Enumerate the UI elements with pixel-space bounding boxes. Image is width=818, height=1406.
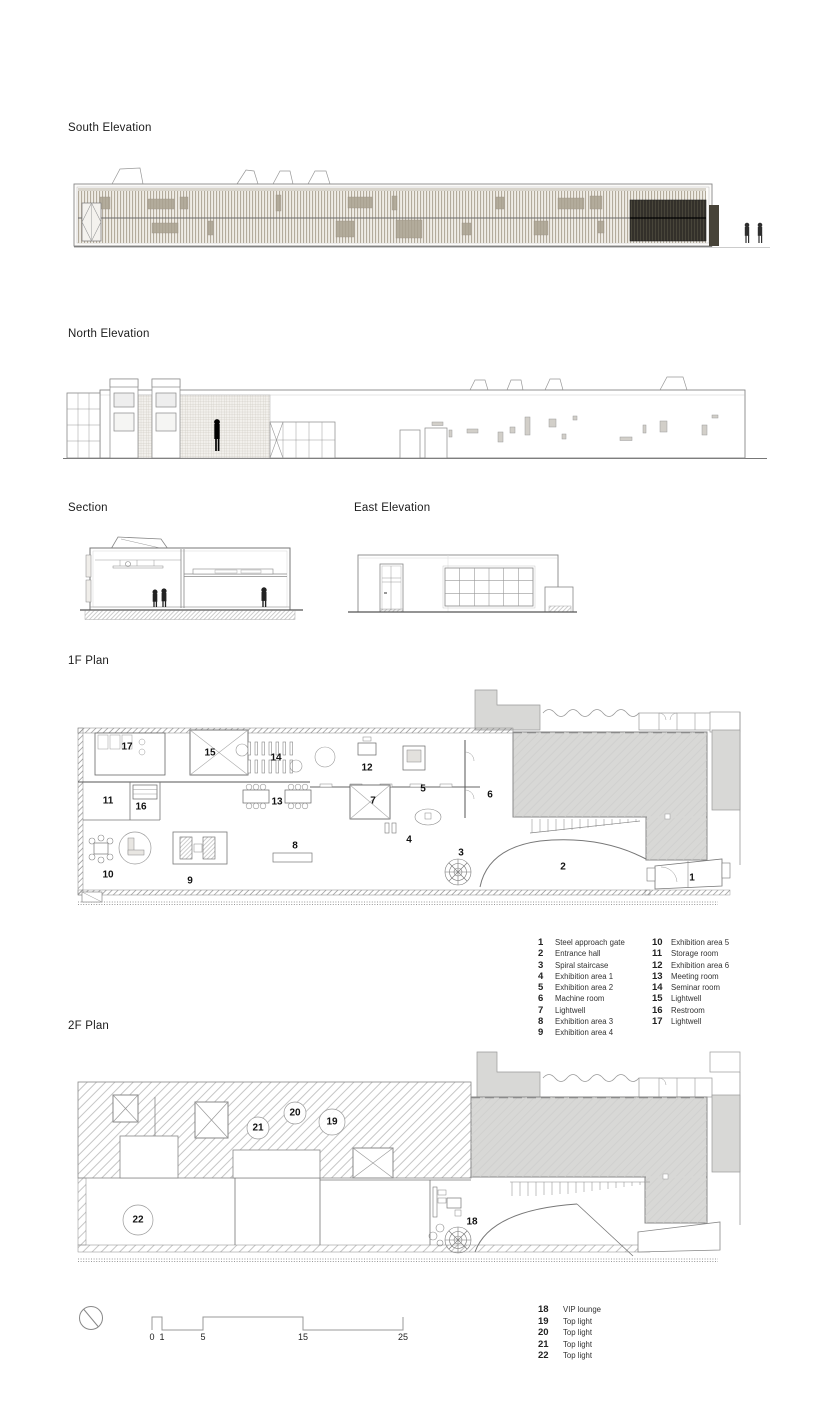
people-figures (745, 223, 762, 243)
legend-label: Top light (563, 1340, 592, 1349)
plan-2f-title: 2F Plan (68, 1020, 109, 1032)
legend-item: 17Lightwell (652, 1016, 729, 1027)
legend-num: 14 (652, 982, 667, 993)
legend-item: 5Exhibition area 2 (538, 982, 625, 993)
room-number-1f-12: 12 (361, 763, 372, 774)
legend-item: 7Lightwell (538, 1005, 625, 1016)
legend-num: 1 (538, 937, 551, 948)
legend-label: Exhibition area 3 (555, 1017, 613, 1026)
legend-item: 12Exhibition area 6 (652, 960, 729, 971)
legend-label: Lightwell (671, 1017, 701, 1026)
room-number-2f-22: 22 (132, 1215, 143, 1226)
legend-1f-col2: 10Exhibition area 5 11Storage room 12Exh… (652, 937, 729, 1027)
legend-label: Entrance hall (555, 949, 601, 958)
north-elevation-drawing (55, 365, 775, 470)
room-number-1f-3: 3 (458, 848, 464, 859)
legend-label: Restroom (671, 1006, 705, 1015)
plan-2f-drawing (70, 1040, 750, 1270)
legend-num: 4 (538, 971, 551, 982)
room-number-1f-1: 1 (689, 873, 695, 884)
plan-1f-drawing (70, 680, 750, 925)
scale-tick-0: 0 (149, 1332, 154, 1342)
room-number-1f-11: 11 (103, 796, 114, 807)
legend-item: 4Exhibition area 1 (538, 971, 625, 982)
east-elevation-title: East Elevation (354, 502, 430, 514)
legend-item: 9Exhibition area 4 (538, 1027, 625, 1038)
legend-item: 2Entrance hall (538, 948, 625, 959)
room-number-1f-4: 4 (406, 835, 412, 846)
legend-item: 20Top light (538, 1327, 601, 1339)
north-elevation-title: North Elevation (68, 328, 150, 340)
legend-item: 11Storage room (652, 948, 729, 959)
legend-num: 20 (538, 1327, 553, 1338)
legend-label: Exhibition area 2 (555, 983, 613, 992)
legend-label: Lightwell (671, 994, 701, 1003)
legend-num: 6 (538, 993, 551, 1004)
legend-item: 8Exhibition area 3 (538, 1016, 625, 1027)
legend-num: 7 (538, 1005, 551, 1016)
legend-label: VIP lounge (563, 1305, 601, 1314)
plan-1f-title: 1F Plan (68, 655, 109, 667)
room-number-1f-16: 16 (135, 802, 146, 813)
legend-num: 21 (538, 1339, 553, 1350)
room-number-1f-13: 13 (271, 797, 282, 808)
legend-item: 18VIP lounge (538, 1304, 601, 1316)
legend-num: 3 (538, 960, 551, 971)
legend-num: 18 (538, 1304, 553, 1315)
legend-num: 19 (538, 1316, 553, 1327)
legend-item: 16Restroom (652, 1005, 729, 1016)
legend-item: 3Spiral staircase (538, 960, 625, 971)
legend-num: 16 (652, 1005, 667, 1016)
legend-item: 13Meeting room (652, 971, 729, 982)
legend-label: Exhibition area 4 (555, 1028, 613, 1037)
legend-item: 14Seminar room (652, 982, 729, 993)
legend-num: 2 (538, 948, 551, 959)
legend-label: Exhibition area 6 (671, 961, 729, 970)
legend-num: 12 (652, 960, 667, 971)
legend-2f: 18VIP lounge 19Top light 20Top light 21T… (538, 1304, 601, 1362)
legend-label: Steel approach gate (555, 938, 625, 947)
legend-label: Spiral staircase (555, 961, 608, 970)
legend-1f-col1: 1Steel approach gate 2Entrance hall 3Spi… (538, 937, 625, 1039)
legend-label: Storage room (671, 949, 718, 958)
legend-num: 9 (538, 1027, 551, 1038)
legend-label: Lightwell (555, 1006, 585, 1015)
legend-num: 5 (538, 982, 551, 993)
legend-label: Exhibition area 1 (555, 972, 613, 981)
legend-num: 15 (652, 993, 667, 1004)
room-number-1f-14: 14 (270, 753, 281, 764)
scale-tick-25: 25 (398, 1332, 408, 1342)
room-number-1f-17: 17 (121, 742, 132, 753)
room-number-2f-21: 21 (252, 1123, 263, 1134)
legend-num: 8 (538, 1016, 551, 1027)
legend-num: 17 (652, 1016, 667, 1027)
room-number-2f-20: 20 (289, 1108, 300, 1119)
room-number-1f-9: 9 (187, 876, 193, 887)
legend-item: 1Steel approach gate (538, 937, 625, 948)
room-number-1f-6: 6 (487, 790, 493, 801)
south-elevation-title: South Elevation (68, 122, 152, 134)
scale-tick-15: 15 (298, 1332, 308, 1342)
spiral-staircase (445, 1227, 471, 1253)
room-number-2f-18: 18 (466, 1217, 477, 1228)
legend-num: 13 (652, 971, 667, 982)
east-elevation-drawing (345, 530, 585, 630)
legend-item: 21Top light (538, 1339, 601, 1351)
legend-label: Top light (563, 1328, 592, 1337)
legend-num: 22 (538, 1350, 553, 1361)
legend-label: Exhibition area 5 (671, 938, 729, 947)
scale-tick-5: 5 (200, 1332, 205, 1342)
legend-item: 19Top light (538, 1316, 601, 1328)
legend-item: 6Machine room (538, 993, 625, 1004)
legend-item: 15Lightwell (652, 993, 729, 1004)
architectural-sheet: South Elevation North Elevation Section … (0, 0, 818, 1406)
north-arrow-icon (70, 1298, 114, 1342)
room-number-1f-5: 5 (420, 784, 426, 795)
legend-label: Top light (563, 1351, 592, 1360)
legend-label: Meeting room (671, 972, 719, 981)
room-number-1f-15: 15 (204, 748, 215, 759)
legend-item: 10Exhibition area 5 (652, 937, 729, 948)
section-drawing (75, 530, 315, 630)
room-number-1f-8: 8 (292, 841, 298, 852)
legend-item: 22Top light (538, 1350, 601, 1362)
room-number-1f-2: 2 (560, 862, 566, 873)
spiral-staircase (445, 859, 471, 885)
section-title: Section (68, 502, 108, 514)
legend-label: Seminar room (671, 983, 720, 992)
legend-num: 11 (652, 948, 667, 959)
scale-bar (140, 1300, 420, 1345)
room-number-1f-10: 10 (102, 870, 113, 881)
room-number-1f-7: 7 (370, 796, 376, 807)
room-number-2f-19: 19 (326, 1117, 337, 1128)
scale-tick-1: 1 (159, 1332, 164, 1342)
legend-num: 10 (652, 937, 667, 948)
legend-label: Machine room (555, 994, 604, 1003)
south-elevation-drawing (60, 155, 780, 255)
legend-label: Top light (563, 1317, 592, 1326)
